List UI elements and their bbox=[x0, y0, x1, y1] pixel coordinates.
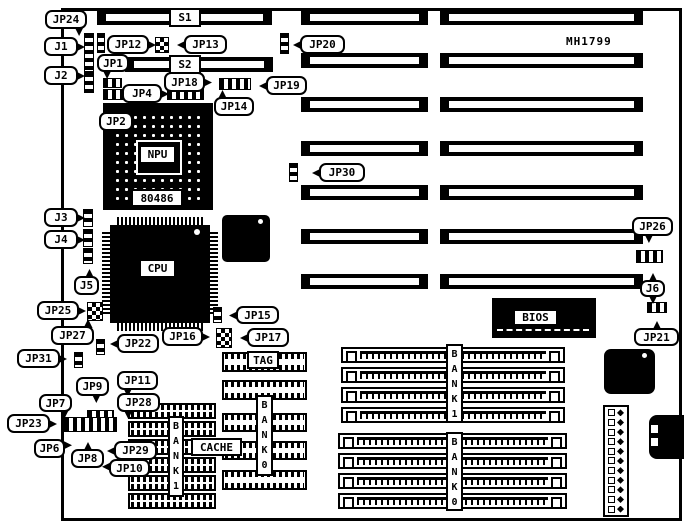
callout-jp30: JP30 bbox=[319, 163, 365, 182]
simm-latch bbox=[346, 351, 357, 363]
callout-jp6-text: JP6 bbox=[40, 442, 60, 455]
callout-jp14: JP14 bbox=[214, 97, 254, 116]
callout-jp9-text: JP9 bbox=[83, 380, 103, 393]
power-pin-row bbox=[605, 467, 627, 475]
jumper-jumper-cluster-main bbox=[64, 417, 117, 432]
jumper-jp30-pins bbox=[289, 163, 298, 182]
simm-latch bbox=[551, 437, 562, 449]
cpu-pins-top bbox=[117, 217, 203, 225]
power-pin-row bbox=[605, 447, 627, 455]
expansion-slot-contact bbox=[310, 101, 419, 108]
callout-jp26: JP26 bbox=[632, 217, 673, 236]
chipset-chip bbox=[222, 215, 270, 262]
callout-jp22-text: JP22 bbox=[125, 337, 152, 350]
callout-jp24-text: JP24 bbox=[53, 13, 80, 26]
callout-jp7: JP7 bbox=[39, 394, 72, 412]
power-pin-row bbox=[605, 495, 627, 503]
board-model-text: MH1799 bbox=[566, 35, 626, 49]
power-pin-row bbox=[605, 486, 627, 494]
simm-latch bbox=[549, 411, 560, 423]
jumper-j6-jp21-pins bbox=[647, 302, 667, 313]
expansion-slot-contact bbox=[310, 278, 419, 285]
callout-jp28-text: JP28 bbox=[125, 396, 152, 409]
expansion-slot-contact bbox=[449, 101, 634, 108]
power-pin-square bbox=[608, 496, 615, 503]
simm-latch bbox=[346, 391, 357, 403]
simm-latch bbox=[343, 477, 354, 489]
callout-jp25-text: JP25 bbox=[45, 304, 72, 317]
callout-jp31: JP31 bbox=[17, 349, 60, 368]
callout-jp25: JP25 bbox=[37, 301, 79, 320]
callout-jp19: JP19 bbox=[266, 76, 307, 95]
callout-jp8-text: JP8 bbox=[78, 452, 98, 465]
callout-jp20-text: JP20 bbox=[309, 38, 336, 51]
callout-jp27-text: JP27 bbox=[59, 329, 86, 342]
power-connector bbox=[603, 405, 629, 517]
callout-j6-text: J6 bbox=[646, 282, 659, 295]
expansion-slot-contact bbox=[310, 233, 419, 240]
expansion-slot bbox=[301, 53, 428, 68]
callout-j3-text: J3 bbox=[54, 211, 67, 224]
callout-jp14-text: JP14 bbox=[221, 100, 248, 113]
simm-latch bbox=[551, 477, 562, 489]
simm-latch bbox=[551, 497, 562, 509]
io-chip bbox=[604, 349, 655, 394]
callout-jp18-text: JP18 bbox=[171, 76, 198, 89]
bios-label: BIOS bbox=[513, 309, 558, 326]
expansion-slot bbox=[440, 229, 643, 244]
callout-jp1-text: JP1 bbox=[103, 57, 123, 70]
expansion-slot bbox=[440, 97, 643, 112]
jumper-jp22-pins bbox=[96, 339, 105, 355]
simm-bank0-label: B A N K 0 bbox=[446, 432, 463, 511]
keyboard-connector bbox=[649, 415, 684, 459]
dip-pins-bottom bbox=[225, 483, 304, 488]
cache-bank0-label: B A N K 0 bbox=[256, 395, 273, 476]
expansion-slot bbox=[440, 141, 643, 156]
power-pin-diamond bbox=[617, 457, 624, 464]
jumper-jp1-pins bbox=[103, 78, 122, 88]
power-pin-diamond bbox=[617, 448, 624, 455]
chipset-pin1-dot bbox=[258, 219, 263, 224]
power-pin-diamond bbox=[617, 419, 624, 426]
callout-jp31-text: JP31 bbox=[25, 352, 52, 365]
callout-jp10: JP10 bbox=[109, 459, 150, 477]
jumper-jp15-pins bbox=[213, 307, 222, 323]
jumper-jp18-19-pins bbox=[219, 78, 251, 90]
callout-jp12-text: JP12 bbox=[115, 38, 142, 51]
callout-j4-text: J4 bbox=[54, 233, 67, 246]
callout-jp15-text: JP15 bbox=[244, 309, 271, 322]
jumper-jp31-pins bbox=[74, 352, 83, 368]
callout-jp11-text: JP11 bbox=[124, 374, 151, 387]
motherboard-diagram: MH1799 S1S2NPU80486CPUBIOSTAGCACHEB A N … bbox=[0, 0, 684, 527]
callout-jp23: JP23 bbox=[7, 414, 50, 433]
callout-j1: J1 bbox=[44, 37, 78, 56]
jumper-j4-pins bbox=[83, 229, 93, 247]
callout-jp21: JP21 bbox=[634, 328, 679, 346]
callout-jp1: JP1 bbox=[97, 54, 129, 72]
cpu-pin1-dot bbox=[194, 229, 200, 235]
jumper-jumper-cluster-top bbox=[87, 410, 114, 418]
power-pin-row bbox=[605, 409, 627, 417]
jumper-j5-pins bbox=[83, 248, 93, 264]
simm-latch bbox=[549, 391, 560, 403]
expansion-slot-contact bbox=[310, 145, 419, 152]
callout-jp2: JP2 bbox=[99, 112, 133, 131]
expansion-slot-contact bbox=[449, 57, 634, 64]
simm-latch bbox=[549, 351, 560, 363]
power-pin-diamond bbox=[617, 409, 624, 416]
callout-jp4: JP4 bbox=[122, 84, 162, 103]
callout-jp29-text: JP29 bbox=[122, 444, 149, 457]
callout-jp11: JP11 bbox=[117, 371, 158, 390]
callout-pointer bbox=[48, 420, 57, 429]
simm-bank1-label: B A N K 1 bbox=[446, 344, 463, 423]
callout-j5: J5 bbox=[74, 276, 99, 295]
power-pin-square bbox=[608, 429, 615, 436]
expansion-slot bbox=[301, 97, 428, 112]
expansion-slot bbox=[440, 274, 643, 289]
power-pin-row bbox=[605, 457, 627, 465]
npu-part-label: 80486 bbox=[131, 189, 183, 207]
callout-jp4-text: JP4 bbox=[132, 87, 152, 100]
callout-jp30-text: JP30 bbox=[329, 166, 356, 179]
dip-pins-bottom bbox=[131, 502, 213, 507]
expansion-slot-contact bbox=[310, 57, 419, 64]
callout-jp15: JP15 bbox=[236, 306, 279, 324]
callout-jp6: JP6 bbox=[34, 439, 65, 458]
callout-jp9: JP9 bbox=[76, 377, 109, 396]
simm-latch bbox=[549, 371, 560, 383]
cpu-label: CPU bbox=[139, 259, 176, 278]
bios-socket-line bbox=[497, 329, 589, 331]
callout-jp21-text: JP21 bbox=[643, 331, 670, 344]
callout-jp13: JP13 bbox=[184, 35, 227, 54]
callout-jp28: JP28 bbox=[117, 393, 160, 412]
power-pin-diamond bbox=[617, 506, 624, 513]
simm-latch bbox=[346, 411, 357, 423]
expansion-slot bbox=[301, 229, 428, 244]
callout-jp16: JP16 bbox=[162, 327, 203, 346]
dip-pins-top bbox=[225, 382, 304, 387]
simm-latch bbox=[346, 371, 357, 383]
io-chip-pin1-dot bbox=[642, 353, 647, 358]
callout-jp12: JP12 bbox=[107, 35, 149, 54]
power-pin-row bbox=[605, 438, 627, 446]
expansion-slot bbox=[301, 185, 428, 200]
power-pin-square bbox=[608, 457, 615, 464]
expansion-slot-contact bbox=[449, 278, 634, 285]
callout-jp16-text: JP16 bbox=[169, 330, 196, 343]
callout-j2: J2 bbox=[44, 66, 78, 85]
callout-jp10-text: JP10 bbox=[116, 462, 143, 475]
cpu-pins-right bbox=[210, 232, 218, 316]
tag-label: TAG bbox=[247, 351, 279, 369]
callout-jp22: JP22 bbox=[117, 334, 159, 353]
callout-jp7-text: JP7 bbox=[46, 397, 66, 410]
callout-jp29: JP29 bbox=[114, 441, 157, 460]
callout-jp13-text: JP13 bbox=[192, 38, 219, 51]
callout-jp23-text: JP23 bbox=[15, 417, 42, 430]
power-pin-diamond bbox=[617, 496, 624, 503]
expansion-slot-contact bbox=[449, 145, 634, 152]
power-pin-diamond bbox=[617, 477, 624, 484]
jumper-jp25-pins bbox=[87, 302, 103, 321]
callout-jp18: JP18 bbox=[164, 72, 205, 92]
jumper-jp16-17-pins bbox=[216, 328, 232, 348]
simm-latch bbox=[343, 497, 354, 509]
expansion-slot-contact bbox=[449, 233, 634, 240]
callout-j5-text: J5 bbox=[80, 279, 93, 292]
simm-latch bbox=[343, 437, 354, 449]
expansion-slot bbox=[440, 53, 643, 68]
power-pin-row bbox=[605, 476, 627, 484]
cache-bank1-label: B A N K 1 bbox=[168, 416, 184, 497]
npu-label: NPU bbox=[139, 145, 176, 164]
callout-j1-text: J1 bbox=[54, 40, 67, 53]
callout-j4: J4 bbox=[44, 230, 78, 249]
cpu-pins-left bbox=[102, 232, 110, 316]
power-pin-diamond bbox=[617, 429, 624, 436]
callout-j2-text: J2 bbox=[54, 69, 67, 82]
power-pin-square bbox=[608, 486, 615, 493]
jumper-jp26-pins bbox=[636, 250, 663, 263]
jumper-jp12-13-pins bbox=[155, 37, 169, 53]
callout-jp17-text: JP17 bbox=[255, 331, 282, 344]
s1-label: S1 bbox=[169, 8, 201, 27]
expansion-slot bbox=[440, 185, 643, 200]
power-pin-diamond bbox=[617, 438, 624, 445]
callout-jp24: JP24 bbox=[45, 10, 87, 29]
power-pin-square bbox=[608, 438, 615, 445]
keyboard-connector-notch bbox=[651, 438, 658, 446]
power-pin-square bbox=[608, 409, 615, 416]
callout-jp8: JP8 bbox=[71, 449, 104, 468]
power-pin-row bbox=[605, 505, 627, 513]
expansion-slot bbox=[301, 141, 428, 156]
callout-jp17: JP17 bbox=[247, 328, 289, 347]
power-pin-diamond bbox=[617, 486, 624, 493]
simm-latch bbox=[343, 457, 354, 469]
expansion-slot-contact bbox=[310, 14, 419, 21]
callout-jp27: JP27 bbox=[51, 326, 94, 345]
expansion-slot bbox=[301, 10, 428, 25]
callout-j3: J3 bbox=[44, 208, 78, 227]
power-pin-diamond bbox=[617, 467, 624, 474]
simm-latch bbox=[551, 457, 562, 469]
expansion-slot-contact bbox=[449, 14, 634, 21]
callout-j6: J6 bbox=[640, 280, 665, 297]
callout-jp19-text: JP19 bbox=[273, 79, 300, 92]
expansion-slot bbox=[440, 10, 643, 25]
keyboard-connector-notch bbox=[651, 425, 658, 433]
jumper-j2-pins bbox=[84, 72, 94, 93]
power-pin-row bbox=[605, 428, 627, 436]
jumper-j1-pins bbox=[84, 33, 94, 72]
expansion-slot bbox=[301, 274, 428, 289]
expansion-slot-contact bbox=[310, 189, 419, 196]
power-pin-square bbox=[608, 467, 615, 474]
jumper-jp24-pins bbox=[97, 33, 105, 53]
callout-jp20: JP20 bbox=[300, 35, 345, 54]
jumper-jp20-pins bbox=[280, 33, 289, 54]
callout-jp2-text: JP2 bbox=[106, 115, 126, 128]
power-pin-row bbox=[605, 418, 627, 426]
power-pin-square bbox=[608, 477, 615, 484]
power-pin-square bbox=[608, 419, 615, 426]
callout-jp26-text: JP26 bbox=[639, 220, 666, 233]
power-pin-square bbox=[608, 506, 615, 513]
expansion-slot-contact bbox=[449, 189, 634, 196]
cache-label: CACHE bbox=[191, 438, 242, 456]
power-pin-square bbox=[608, 448, 615, 455]
